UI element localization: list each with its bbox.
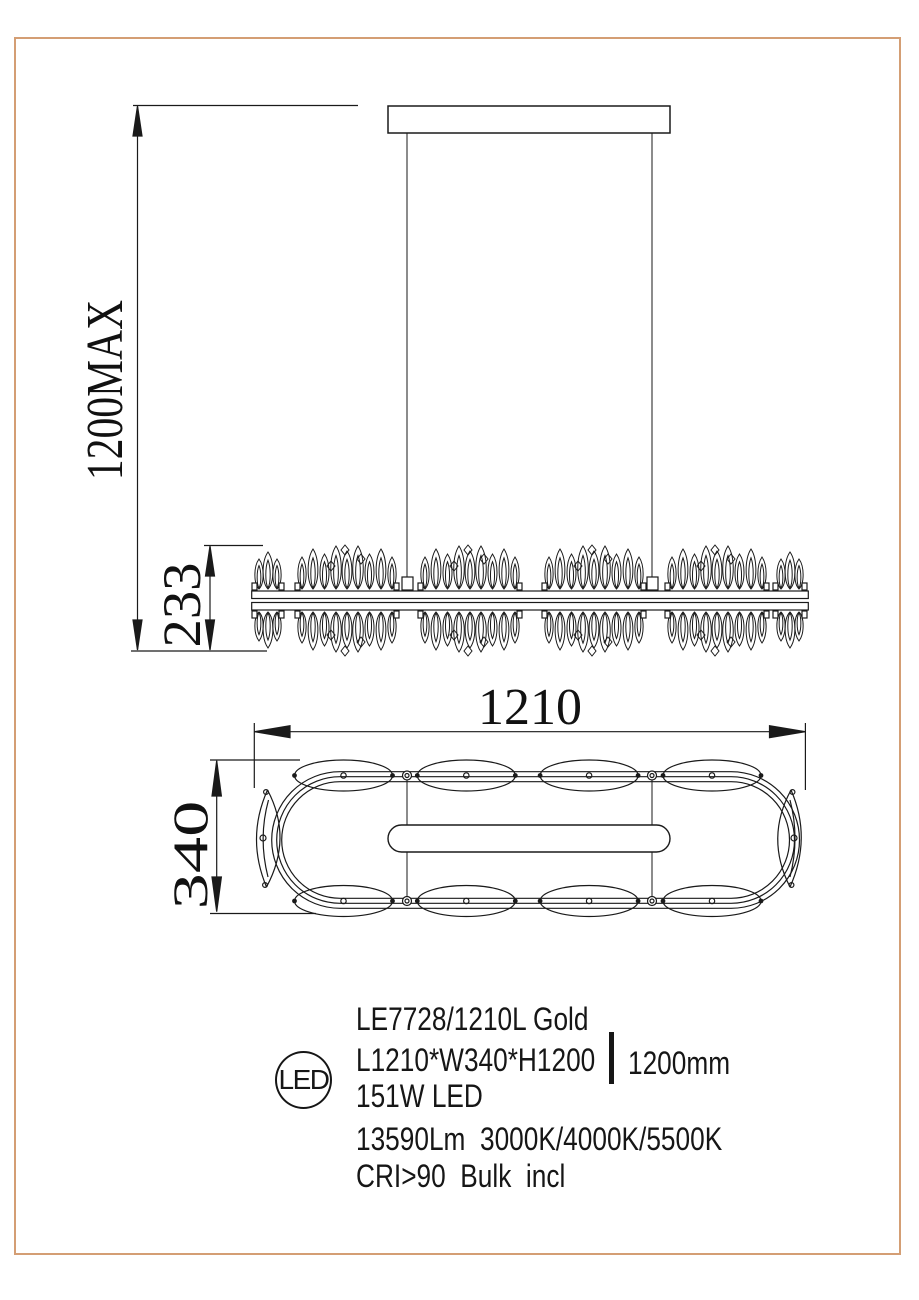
spec-model: LE7728/1210L Gold <box>356 1002 588 1036</box>
chandelier-crystal-clusters <box>255 545 803 656</box>
led-badge-label: LED <box>279 1064 329 1096</box>
fixture-bar <box>252 591 809 610</box>
page: { "frame": { "border_color": "#d49e74" }… <box>0 0 919 1300</box>
front-view <box>131 106 808 657</box>
spec-cri-bulb: CRI>90 Bulk incl <box>356 1159 565 1193</box>
arrow-up-icon <box>133 106 142 136</box>
dimension-233-label: 233 <box>155 542 209 668</box>
spec-suspension-height: 1200mm <box>628 1046 730 1080</box>
wire-connector-right <box>647 577 658 590</box>
center-stem-plate <box>388 825 670 852</box>
ceiling-canopy <box>388 106 670 133</box>
top-view <box>210 723 806 917</box>
dimension-1210-label: 1210 <box>450 684 610 732</box>
dimension-340-label: 340 <box>165 739 215 971</box>
spec-divider-bar <box>609 1032 614 1084</box>
arrow-right-icon <box>770 726 806 738</box>
led-badge: LED <box>275 1051 332 1109</box>
spec-dimensions: L1210*W340*H1200 <box>356 1043 595 1077</box>
wire-connector-left <box>402 577 413 590</box>
arrow-left-icon <box>254 726 290 738</box>
arrow-down-icon <box>133 620 142 650</box>
spec-lumens-color-temp: 13590Lm 3000K/4000K/5500K <box>356 1122 722 1156</box>
spec-wattage: 151W LED <box>356 1079 483 1113</box>
dimension-1200max-label: 1200MAX <box>80 296 132 485</box>
